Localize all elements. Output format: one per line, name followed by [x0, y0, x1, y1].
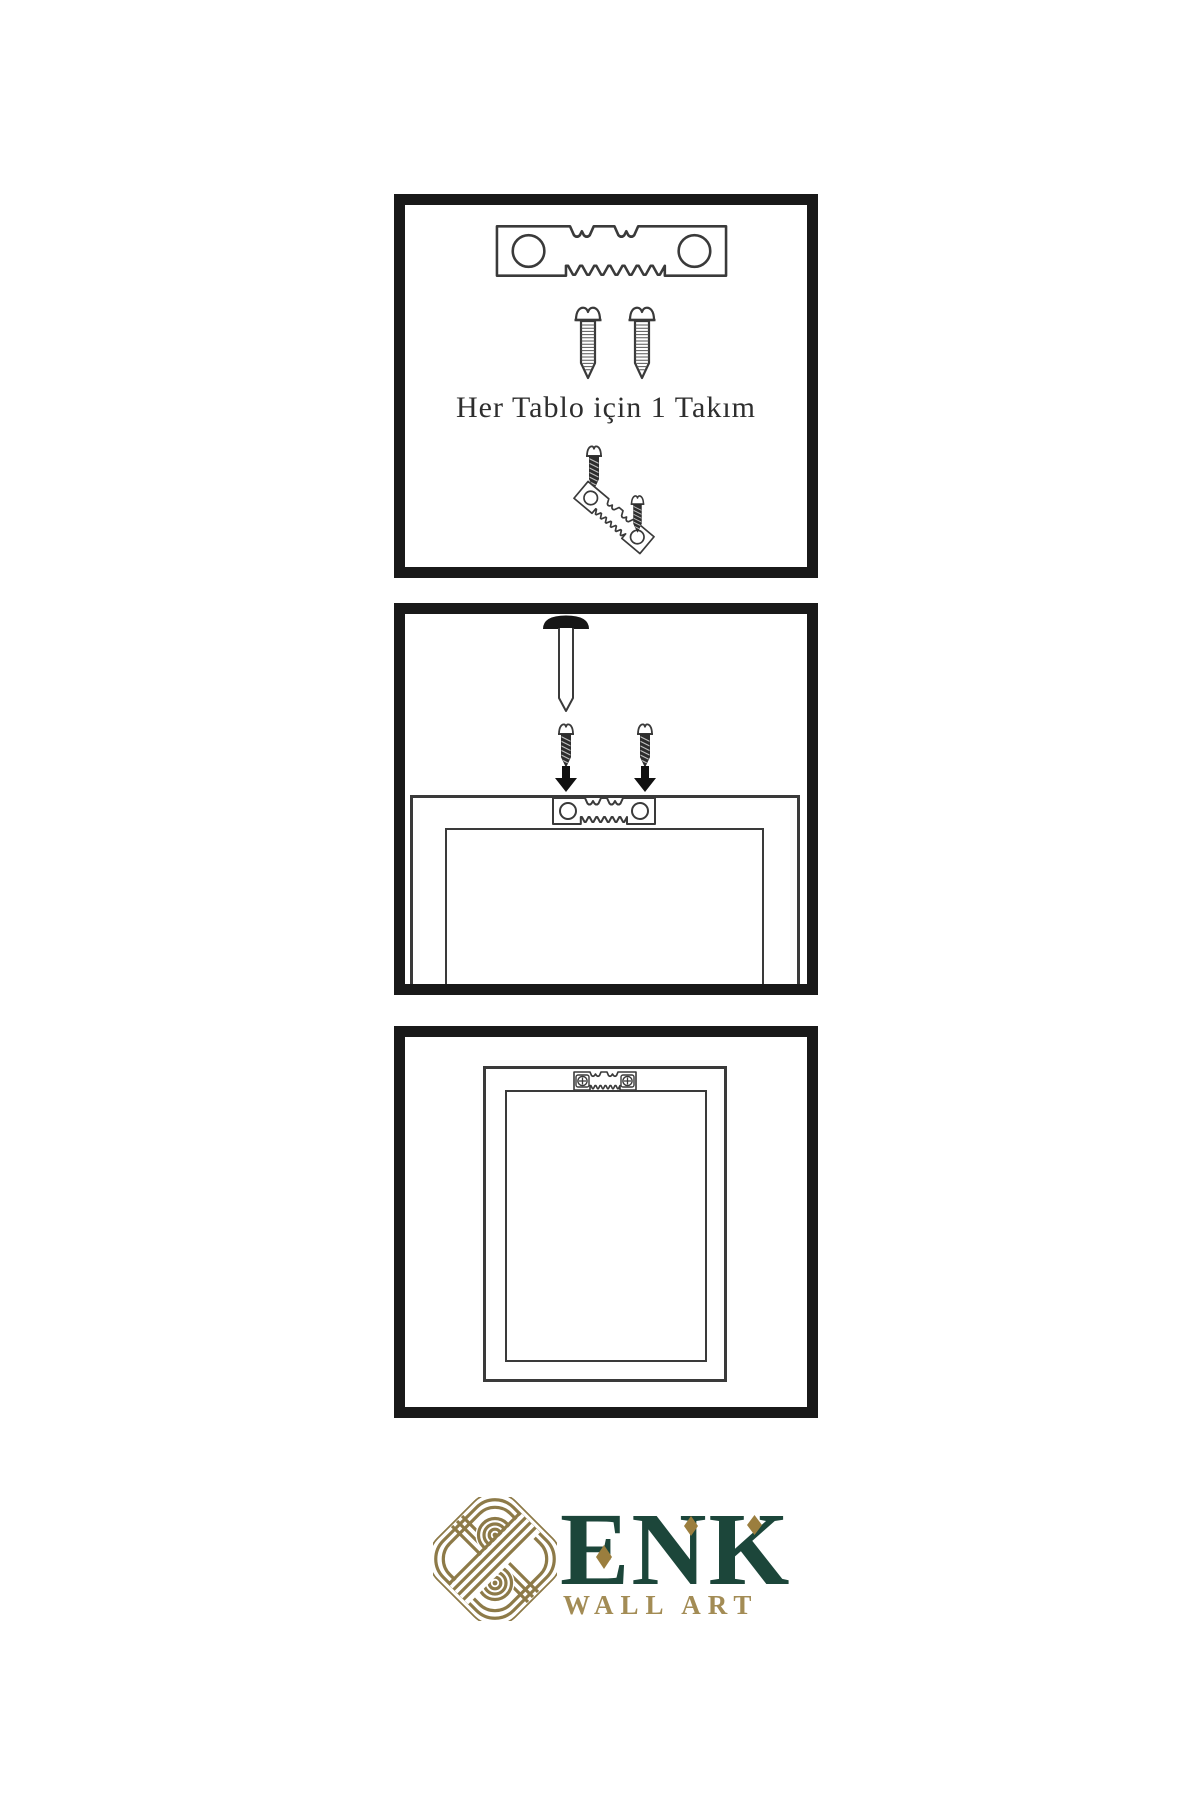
step-1-panel: Her Tablo için 1 Takım: [394, 194, 818, 578]
step-2-panel: [394, 603, 818, 995]
knot-icon: [433, 1497, 557, 1621]
brand-subtitle: WALL ART: [563, 1590, 758, 1621]
frame-back-inner-outline: [445, 828, 764, 995]
screw-icon: [626, 303, 658, 381]
brand-logo: ENK WALL ART: [433, 1497, 793, 1637]
dark-screw-icon: [629, 493, 646, 534]
sawtooth-hanger-installed-icon: [572, 1070, 638, 1092]
sawtooth-hanger-icon: [551, 795, 657, 827]
screw-icon: [572, 303, 604, 381]
instruction-sheet: Her Tablo için 1 Takım ENK WALL ART: [0, 0, 1200, 1800]
frame-back-inner-outline: [505, 1090, 707, 1362]
kit-caption: Her Tablo için 1 Takım: [405, 391, 807, 425]
dark-screw-icon: [556, 721, 576, 769]
dark-screw-icon: [635, 721, 655, 769]
sawtooth-hanger-icon: [493, 221, 730, 279]
arrow-down-icon: [634, 766, 656, 792]
brand-name: ENK: [560, 1498, 791, 1602]
nail-icon: [542, 614, 590, 714]
hanger-assembly-detail: [551, 440, 691, 566]
step-3-panel: [394, 1026, 818, 1418]
arrow-down-icon: [555, 766, 577, 792]
